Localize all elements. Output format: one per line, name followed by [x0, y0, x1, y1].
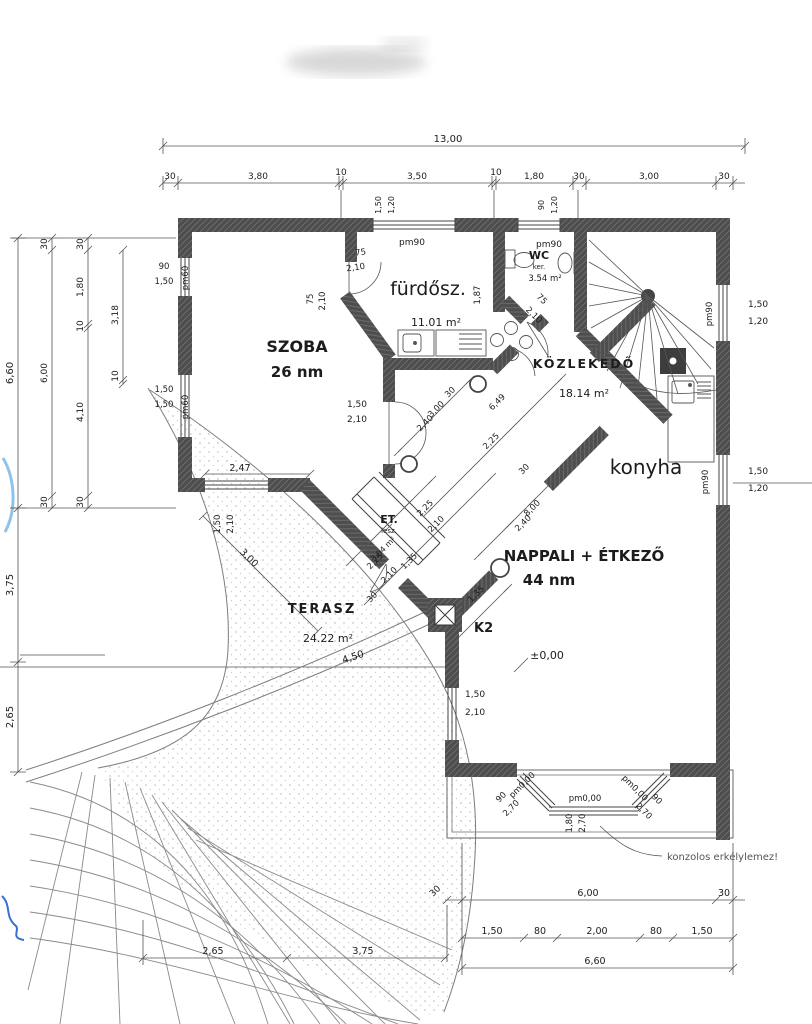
nappali-west-wall-b [445, 740, 459, 763]
dim-left-b1: 1,80 [76, 277, 86, 297]
dim-szoba-door-a: 1,50 [347, 400, 367, 410]
dim-hallD-0: 30 [517, 462, 532, 477]
dim-left-c1: 10 [111, 370, 121, 382]
dim-bottom-b1: 80 [534, 926, 546, 937]
right-wall-b [716, 341, 730, 455]
label-pm60-2: pm60 [181, 395, 191, 420]
room-nappali-area: 44 nm [523, 571, 575, 589]
dim-top-c8: 30 [718, 172, 730, 182]
dim-left-lower1: 2,65 [5, 706, 16, 728]
floor-plan-page: 13,00 30 3,80 10 3,50 10 1,80 30 3,00 30… [0, 0, 812, 1024]
room-nappali-name: NAPPALI + ÉTKEZŐ [504, 545, 665, 565]
dim-left-c0: 3,18 [111, 305, 121, 325]
room-wc-name: WC [529, 249, 549, 262]
nappali-west-wall-a [445, 625, 459, 688]
room-furdo-name: fürdősz. [390, 278, 466, 300]
room-terasz-area: 24.22 m² [303, 632, 353, 645]
terrain-curves [0, 388, 476, 1024]
dim-west-win-a: 1,50 [465, 690, 485, 700]
dim-left-win1-b: 1,50 [155, 277, 174, 287]
top-wall-c [560, 218, 730, 232]
dim-bottom-b3: 80 [650, 926, 662, 937]
room-kozlekedo-area: 18.14 m² [559, 387, 609, 400]
left-wall-c [178, 437, 192, 478]
marker-level: ±0,00 [530, 649, 564, 662]
dim-bottom-left0: 2,65 [202, 946, 223, 957]
window-top-b [518, 218, 560, 232]
top-wall-a [178, 218, 373, 232]
dim-left-total: 6,60 [5, 362, 16, 384]
dim-bayR-0: 2,70 [633, 801, 653, 821]
dim-left-a0: 30 [40, 238, 50, 250]
window-right-1 [719, 285, 727, 341]
balcony-slab [447, 770, 733, 856]
room-terasz-name: TERASZ [288, 602, 357, 617]
dim-et-0: 2,25 [415, 498, 435, 518]
dim-bayC-0: 1,80 [565, 814, 575, 833]
wc-east-wall [574, 232, 587, 332]
room-furdo-area: 11.01 m² [411, 316, 461, 329]
dim-top-c3: 3,50 [407, 172, 427, 182]
dim-top-winA-w: 1,50 [374, 196, 383, 214]
dim-bath-door-b: 2,10 [346, 262, 366, 275]
blue-pen-mark-bottom [2, 896, 24, 940]
dim-top-c7: 3,00 [639, 172, 659, 182]
room-wc-sub: ker. [533, 263, 546, 271]
wc-basin [558, 252, 574, 274]
dim-bayL-0: 90 [494, 790, 509, 805]
dim-hallA-0: 30 [443, 385, 458, 400]
bay-glass-center [549, 807, 638, 815]
dim-right-win1-b: 1,20 [748, 317, 768, 327]
dim-west-win-b: 2,10 [465, 708, 485, 718]
room-wc-area: 3.54 m² [528, 274, 561, 284]
dim-left-b3: 4,10 [76, 402, 86, 422]
bath-counter-unit [436, 330, 486, 356]
dim-top-winB-h: 1,20 [550, 196, 559, 214]
dim-left-win1-a: 90 [159, 262, 170, 272]
window-right-2 [719, 455, 727, 505]
dim-bottom-b2: 2,00 [586, 926, 607, 937]
dim-left-win2-a: 1,50 [155, 385, 174, 395]
dim-top-c4: 10 [490, 168, 502, 178]
dim-bayC-1: 2,70 [578, 814, 588, 833]
dim-bayR-1: 90 [649, 792, 664, 807]
dim-szoba-win: 2,47 [229, 463, 250, 474]
window-top-a [373, 218, 455, 232]
dim-bath-depth: 1,87 [473, 286, 483, 305]
right-wall-c [716, 505, 730, 840]
szoba-east-wall-b [383, 464, 395, 478]
dim-bath-door2-a: 75 [306, 294, 316, 305]
dim-bath-door-a: 75 [355, 247, 367, 258]
dim-wc-door-a: 75 [534, 292, 549, 307]
k2-column [428, 598, 462, 632]
label-pm90-top-a: pm90 [399, 238, 425, 248]
dim-bottom-b4: 1,50 [691, 926, 712, 937]
room-szoba-area: 26 nm [271, 363, 323, 381]
dim-top-c6: 30 [573, 172, 585, 182]
dim-bottom-total: 6,60 [584, 956, 605, 967]
dim-right-win2-b: 1,20 [748, 484, 768, 494]
dim-top-c5: 1,80 [524, 172, 544, 182]
blue-pen-mark-left [3, 458, 13, 532]
dim-left-win2-b: 1,50 [155, 400, 174, 410]
dim-bottom-a1: 6,00 [577, 888, 598, 899]
right-wall-a [716, 232, 730, 285]
left-wall-a [178, 232, 192, 258]
flue-column [660, 348, 686, 374]
note-konzolos: konzolos erkélylemez! [667, 851, 778, 863]
label-pm60-1: pm60 [181, 266, 191, 291]
staircase [589, 240, 716, 399]
dim-bottom-b0: 1,50 [481, 926, 502, 937]
room-szoba-name: SZOBA [266, 337, 328, 356]
dim-et-1: 2,10 [426, 514, 446, 534]
note-leader-line [600, 826, 662, 856]
kitchen-counter [668, 376, 714, 462]
dim-right-win1-a: 1,50 [748, 300, 768, 310]
dim-top-c2: 10 [335, 168, 347, 178]
bath-basin-unit [398, 330, 434, 356]
dim-szoba-door-b: 2,10 [347, 415, 367, 425]
room-et-sub: lesz. [381, 527, 397, 535]
dim-bottom-a2: 30 [718, 888, 730, 899]
dim-right-win2-a: 1,50 [748, 467, 768, 477]
dim-hallB: 6,49 [487, 392, 507, 412]
marker-k2: K2 [474, 621, 493, 636]
dim-szoba-win-v1: 2,10 [226, 515, 236, 534]
dim-top-winB-w: 90 [537, 200, 546, 210]
bath-east-wall [493, 232, 505, 312]
dim-left-b2: 10 [76, 320, 86, 332]
bay-left-wall [445, 763, 517, 777]
dim-et-4: 2,10 [379, 565, 399, 585]
scan-artifacts [286, 37, 428, 76]
dim-top-winA-h: 1,20 [387, 196, 396, 214]
room-kozlekedo-name: KÖZLEKEDŐ [533, 356, 636, 371]
top-wall-b [455, 218, 518, 232]
bath-south-wall [383, 358, 493, 370]
left-wall-b [178, 296, 192, 375]
dim-left-a2: 30 [40, 496, 50, 508]
floor-plan-drawing: 13,00 30 3,80 10 3,50 10 1,80 30 3,00 30… [0, 0, 812, 1024]
dim-top-total: 13,00 [434, 134, 463, 145]
dim-szoba-win-v0: 1,50 [213, 515, 223, 534]
szoba-south-wall-a [178, 478, 205, 492]
label-pm90-right-1: pm90 [705, 302, 715, 327]
label-pm000-right: pm0,00 [619, 774, 649, 804]
label-pm90-right-2: pm90 [701, 470, 711, 495]
room-et-name: ET. [380, 513, 398, 526]
dim-top-c0: 30 [164, 172, 176, 182]
dim-left-a1: 6,00 [40, 363, 50, 383]
dim-top-c1: 3,80 [248, 172, 268, 182]
dim-left-b0: 30 [76, 238, 86, 250]
dim-bath-door2-b: 2,10 [318, 292, 328, 311]
stair-treads [589, 240, 714, 399]
hall-stub-wall [544, 426, 609, 491]
room-konyha-name: konyha [610, 455, 683, 479]
dim-left-b4: 30 [76, 496, 86, 508]
label-pm000-center: pm0,00 [569, 794, 602, 804]
dim-bottom-left1: 3,75 [352, 946, 373, 957]
szoba-chamfer-wall [340, 291, 396, 361]
dim-left-lower0: 3,75 [5, 574, 16, 596]
